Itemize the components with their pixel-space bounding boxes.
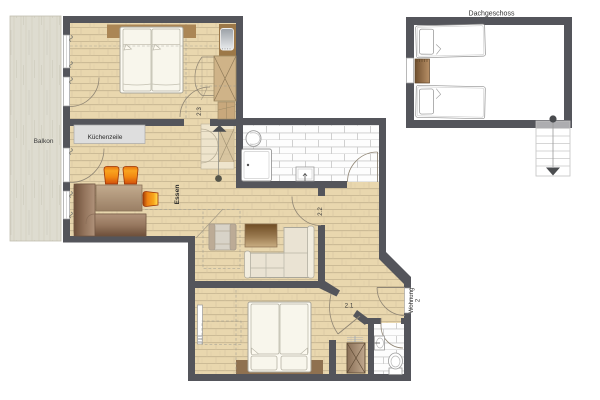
- svg-text:Dachgeschoss: Dachgeschoss: [469, 10, 515, 17]
- svg-text:Balkon: Balkon: [34, 138, 54, 145]
- svg-text:Essen: Essen: [174, 184, 181, 204]
- svg-text:Wohnung: Wohnung: [409, 288, 415, 314]
- svg-text:2.3: 2.3: [196, 107, 203, 116]
- svg-text:2.2: 2.2: [317, 207, 324, 216]
- svg-text:2.1: 2.1: [345, 303, 354, 310]
- svg-text:Küchenzeile: Küchenzeile: [88, 134, 123, 141]
